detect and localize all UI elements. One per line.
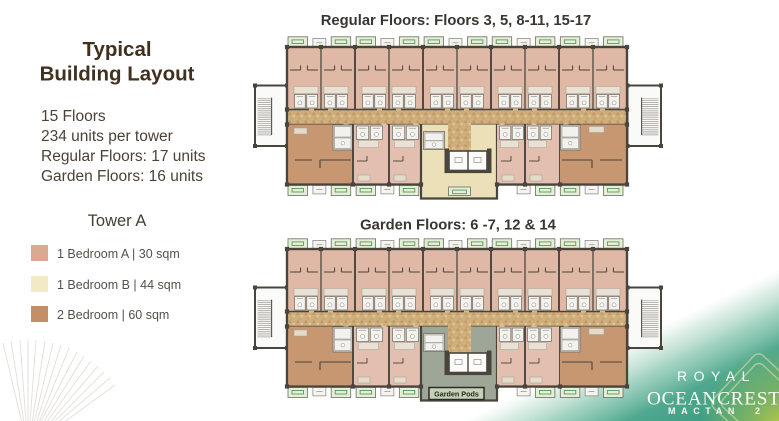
svg-text:1 Bedroom A | 30 sqm: 1 Bedroom A | 30 sqm xyxy=(57,247,180,261)
svg-text:Garden Pods: Garden Pods xyxy=(434,390,479,399)
svg-text:Regular Floors: Floors 3, 5, 8: Regular Floors: Floors 3, 5, 8-11, 15-17 xyxy=(321,13,592,29)
svg-text:Typical: Typical xyxy=(82,38,151,61)
svg-text:15 Floors: 15 Floors xyxy=(41,108,106,125)
svg-text:Tower A: Tower A xyxy=(88,212,147,230)
svg-text:1 Bedroom B | 44 sqm: 1 Bedroom B | 44 sqm xyxy=(57,278,181,292)
svg-text:ROYAL: ROYAL xyxy=(677,368,756,384)
svg-text:Garden Floors: 16 units: Garden Floors: 16 units xyxy=(41,168,203,185)
svg-text:Regular Floors: 17 units: Regular Floors: 17 units xyxy=(41,148,206,165)
svg-text:MACTAN: MACTAN xyxy=(668,406,740,416)
svg-text:2 Bedroom | 60 sqm: 2 Bedroom | 60 sqm xyxy=(57,308,169,322)
svg-text:2: 2 xyxy=(755,406,760,416)
svg-text:234 units per tower: 234 units per tower xyxy=(41,128,173,145)
svg-text:Building Layout: Building Layout xyxy=(40,63,195,86)
svg-text:Garden Floors: 6 -7, 12 & 14: Garden Floors: 6 -7, 12 & 14 xyxy=(360,218,556,234)
